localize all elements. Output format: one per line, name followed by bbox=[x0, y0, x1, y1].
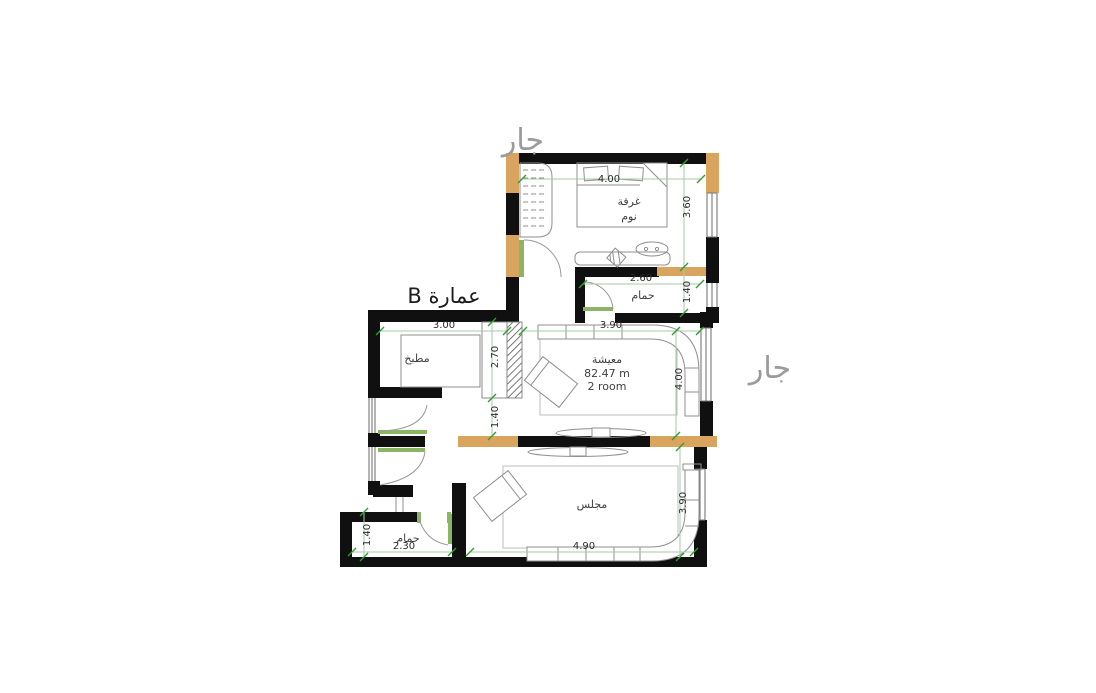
console-table-base bbox=[592, 428, 610, 437]
living-label: معيشة bbox=[592, 353, 622, 366]
dresser-box-rect bbox=[607, 248, 626, 267]
door-leaf bbox=[519, 240, 524, 277]
stool-icon bbox=[636, 242, 668, 256]
dim-ticks bbox=[348, 159, 705, 561]
wall bbox=[700, 312, 713, 328]
neighbor-top-label: جار bbox=[500, 123, 544, 158]
dim-bedroom-width: 4.00 bbox=[598, 174, 620, 185]
wood-lintel bbox=[458, 436, 518, 447]
wall bbox=[506, 193, 519, 237]
entry-jamb-lines bbox=[396, 497, 403, 512]
bath-bottom-label: حمام bbox=[396, 532, 419, 545]
living-rooms-label: 2 room bbox=[588, 380, 627, 393]
window-icon bbox=[369, 447, 375, 481]
window-icon bbox=[707, 283, 717, 307]
majlis-sofa-icon bbox=[527, 470, 699, 561]
wall bbox=[368, 433, 380, 447]
wood-lintel bbox=[650, 436, 717, 447]
wall bbox=[380, 436, 425, 447]
wall bbox=[373, 485, 413, 497]
wood-column bbox=[506, 153, 519, 193]
walls bbox=[340, 153, 719, 567]
dim-majlis-height: 3.90 bbox=[678, 492, 689, 514]
wood-lintel bbox=[657, 267, 706, 276]
wall bbox=[368, 387, 442, 398]
wood-column bbox=[706, 153, 719, 193]
wardrobe-hangers bbox=[523, 170, 544, 226]
stool-dot bbox=[655, 247, 658, 250]
door-leaf bbox=[583, 307, 613, 311]
dim-bath-bottom-height: 1.40 bbox=[362, 524, 373, 546]
dimension-lines bbox=[348, 159, 705, 561]
dim-kitchen-height: 2.70 bbox=[490, 346, 501, 368]
kitchen-label: مطبخ bbox=[404, 352, 429, 365]
blanket-fold bbox=[643, 163, 667, 187]
dim-bath-top-width: 2.60 bbox=[630, 273, 652, 284]
wall bbox=[340, 512, 417, 522]
dim-bedroom-height: 3.60 bbox=[682, 196, 693, 218]
dim-hall-height: 1.40 bbox=[490, 406, 501, 428]
window-icon bbox=[701, 328, 711, 401]
wall bbox=[452, 483, 466, 567]
dim-kitchen-width: 3.00 bbox=[433, 320, 455, 331]
dresser-box bbox=[607, 248, 626, 267]
window-icon bbox=[707, 193, 717, 237]
wood-column bbox=[506, 235, 519, 277]
majlis-armchair-icon bbox=[473, 471, 526, 522]
door-swing-arc bbox=[524, 240, 561, 277]
door-leaf bbox=[448, 514, 452, 544]
floor-plan-drawing: 4.00 3.60 2.60 1.40 3.00 3.90 2.70 1.40 … bbox=[0, 0, 1096, 693]
armchair-seat bbox=[473, 471, 526, 522]
door-swing-arc bbox=[380, 452, 425, 485]
dresser-box-hatch bbox=[607, 248, 626, 267]
living-armchair-icon bbox=[524, 357, 577, 408]
wall bbox=[575, 313, 583, 323]
wall bbox=[368, 310, 380, 395]
dim-bath-top-height: 1.40 bbox=[682, 281, 693, 303]
bath-top-label: حمام bbox=[631, 289, 654, 302]
living-area-label: 82.47 m bbox=[584, 367, 630, 380]
dim-living-width: 3.90 bbox=[600, 320, 622, 331]
console-table-base bbox=[570, 447, 586, 456]
door-swing-arc bbox=[584, 282, 613, 309]
floor-plan-canvas: 4.00 3.60 2.60 1.40 3.00 3.90 2.70 1.40 … bbox=[0, 0, 1096, 693]
door-swing-arc bbox=[418, 515, 448, 545]
door-leaf bbox=[378, 448, 425, 452]
majlis-label: مجلس bbox=[577, 498, 608, 511]
dim-majlis-width: 4.90 bbox=[573, 541, 595, 552]
wall bbox=[700, 401, 713, 436]
armchair-seat bbox=[524, 357, 577, 408]
dim-living-height: 4.00 bbox=[674, 368, 685, 390]
bedroom-label-line2: نوم bbox=[621, 210, 637, 223]
neighbor-right-label: جار bbox=[747, 351, 791, 386]
shaft-and-hatch bbox=[482, 322, 522, 398]
window-icon bbox=[369, 398, 375, 433]
building-label: عمارة B bbox=[407, 284, 480, 308]
wood-columns bbox=[458, 153, 719, 447]
wall bbox=[706, 237, 719, 283]
bedroom-label-line1: غرفة bbox=[618, 195, 641, 208]
stool-dot bbox=[644, 247, 647, 250]
door-swing-arc bbox=[382, 405, 427, 431]
